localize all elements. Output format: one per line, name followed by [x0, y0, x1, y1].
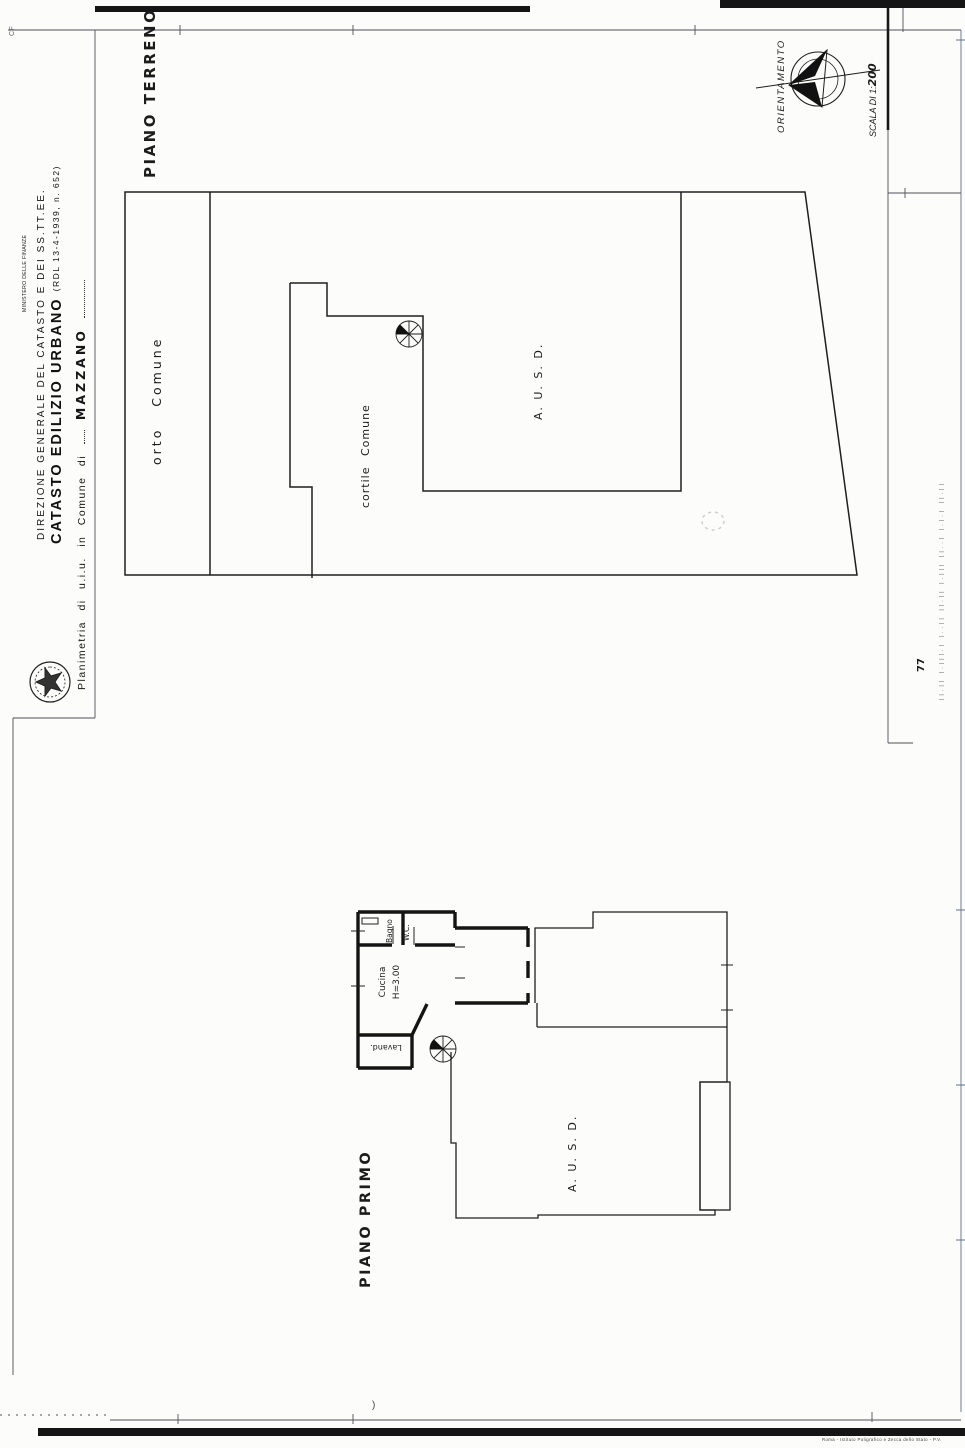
ministry-line: MINISTERO DELLE FINANZE — [23, 235, 28, 312]
orientamento-label: ORIENTAMENTO — [777, 39, 787, 133]
cortile-comune-label: cortile Comune — [360, 404, 371, 508]
cucina-label-block: Cucina H=3.00 — [376, 952, 406, 1012]
edge-cutoff-text: ||.|| |.|||.| |..|| ||.|| |.||| ||..| |.… — [940, 481, 946, 700]
paren-mark: ) — [372, 1400, 375, 1411]
lavand-label: Lavand. — [362, 1040, 410, 1054]
corner-mark: CF — [9, 26, 16, 36]
ausd-ground-label: A. U. S. D. — [533, 343, 544, 420]
ground-floor-title: PIANO TERRENO — [143, 8, 158, 178]
form-frame — [0, 8, 965, 1424]
ausd-first-label: A. U. S. D. — [567, 1115, 578, 1192]
ground-floor-outline — [125, 192, 857, 578]
sheet-number: 77 — [917, 658, 927, 672]
spiral-staircase-icon — [396, 321, 422, 347]
scale-prefix: SCALA DI 1: — [868, 86, 878, 137]
floor-plan-drawing — [0, 0, 965, 1448]
first-floor-ausd-outline — [451, 912, 733, 1218]
dotted-leader — [75, 280, 85, 318]
compass-icon — [756, 50, 880, 107]
catasto-title-bold: CATASTO EDILIZIO URBANO — [49, 297, 65, 544]
form-header: MINISTERO DELLE FINANZE DIREZIONE GENERA… — [6, 24, 96, 716]
comune-name: MAZZANO — [73, 328, 88, 420]
stamp-smudge — [702, 512, 724, 530]
direzione-line: DIREZIONE GENERALE DEL CATASTO E DEI SS.… — [37, 188, 47, 540]
scan-artifacts — [38, 0, 965, 1436]
orto-comune-label: orto Comune — [151, 337, 164, 465]
scale-value: 200 — [866, 63, 879, 86]
catasto-title: CATASTO EDILIZIO URBANO (RDL 13-4-1939, … — [50, 165, 65, 544]
scale-label: SCALA DI 1:200 — [867, 63, 878, 137]
cadastral-plan-sheet: MINISTERO DELLE FINANZE DIREZIONE GENERA… — [0, 0, 965, 1448]
planimetria-line: Planimetria di u.i.u. in Comune di MAZZA… — [75, 280, 88, 690]
catasto-law-ref: (RDL 13-4-1939, n. 652) — [51, 165, 61, 291]
spiral-staircase-icon — [430, 1036, 456, 1062]
wc-label: W.C. — [403, 924, 411, 941]
first-floor-title: PIANO PRIMO — [359, 1150, 374, 1288]
dotted-leader — [75, 431, 85, 445]
planimetria-prefix: Planimetria di u.i.u. in Comune di — [76, 455, 88, 690]
cucina-height-label: H=3.00 — [390, 952, 404, 1012]
printer-imprint: Roma - Istituto Poligrafico e Zecca dell… — [822, 1437, 942, 1442]
cucina-label: Cucina — [376, 952, 390, 1012]
bagno-label: Bagno — [386, 919, 394, 943]
